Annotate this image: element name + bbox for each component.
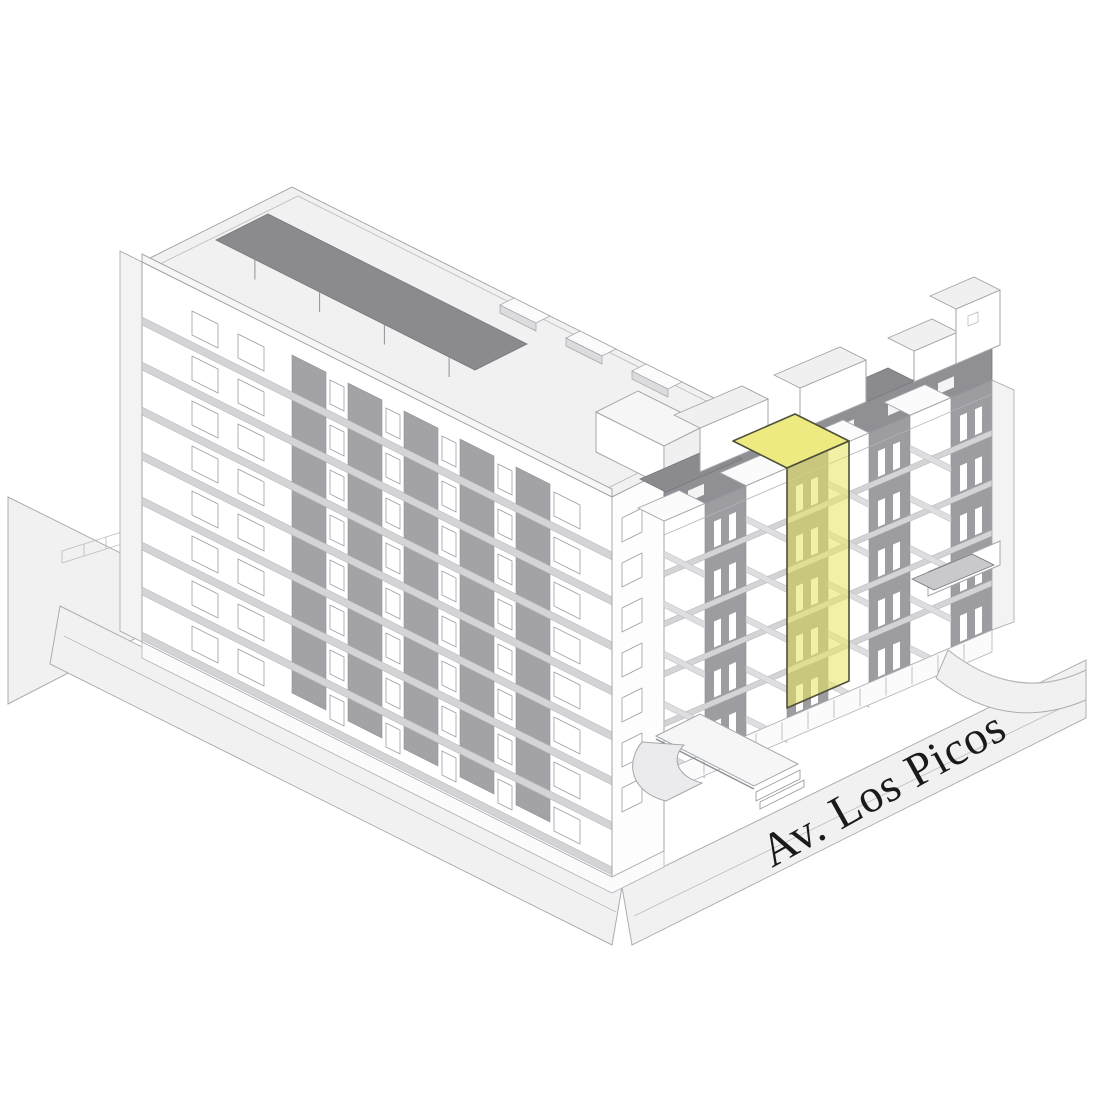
facade-detail [975, 406, 982, 435]
facade-detail [960, 513, 967, 542]
facade-detail [869, 415, 910, 683]
highlighted-unit-facade[interactable] [787, 441, 849, 708]
facade-detail [714, 569, 721, 598]
facade-detail [893, 642, 900, 671]
facade-detail [975, 606, 982, 635]
facade-detail [960, 413, 967, 442]
facade-detail [975, 456, 982, 485]
facade-detail [878, 648, 885, 677]
facade-detail [893, 442, 900, 471]
facade-detail [893, 592, 900, 621]
left-end-return [120, 251, 142, 642]
facade-detail [878, 598, 885, 627]
facade-detail [878, 448, 885, 477]
building-axonometric: Av. Los Picos [0, 0, 1100, 1100]
facade-detail [893, 542, 900, 571]
facade-detail [878, 548, 885, 577]
facade-detail [714, 619, 721, 648]
facade-detail [714, 519, 721, 548]
facade-detail [893, 492, 900, 521]
facade-detail [960, 463, 967, 492]
axonometric-diagram: Av. Los Picos [0, 0, 1100, 1100]
facade-detail [729, 612, 736, 641]
facade-detail [705, 486, 746, 754]
facade-detail [714, 669, 721, 698]
facade-detail [878, 498, 885, 527]
facade-detail [729, 512, 736, 541]
facade-detail [729, 662, 736, 691]
facade-detail [960, 613, 967, 642]
facade-detail [975, 506, 982, 535]
facade-detail [729, 562, 736, 591]
right-end-face [992, 380, 1014, 630]
facade-detail [951, 380, 992, 648]
